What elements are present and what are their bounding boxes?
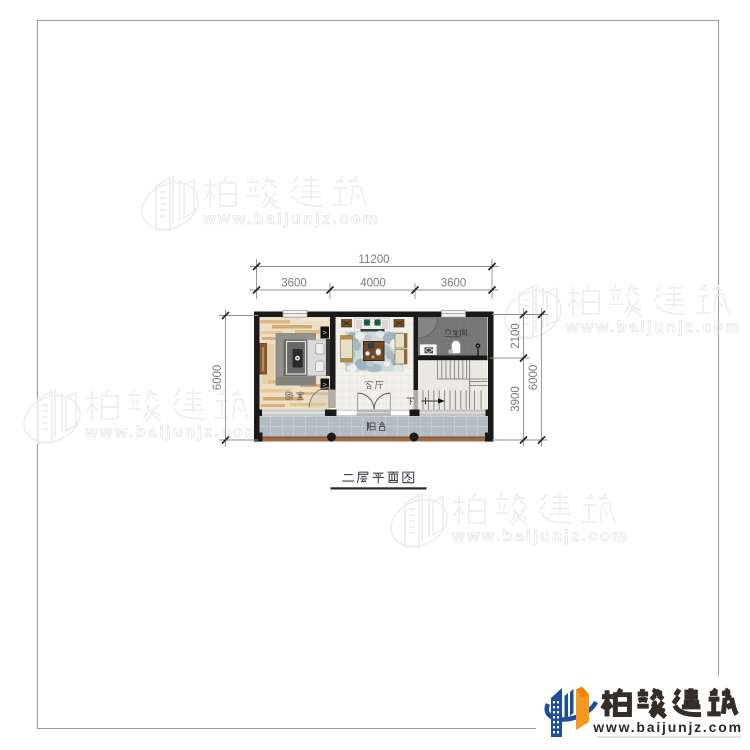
svg-text:4000: 4000 <box>360 278 386 290</box>
svg-text:3600: 3600 <box>441 278 467 290</box>
svg-text:3600: 3600 <box>281 278 307 290</box>
svg-text:6000: 6000 <box>528 365 540 391</box>
svg-text:11200: 11200 <box>358 254 389 266</box>
svg-text:2100: 2100 <box>510 323 522 349</box>
svg-text:www.baijunjz.com: www.baijunjz.com <box>592 719 743 735</box>
svg-text:3900: 3900 <box>510 386 522 412</box>
svg-text:6000: 6000 <box>212 365 224 391</box>
